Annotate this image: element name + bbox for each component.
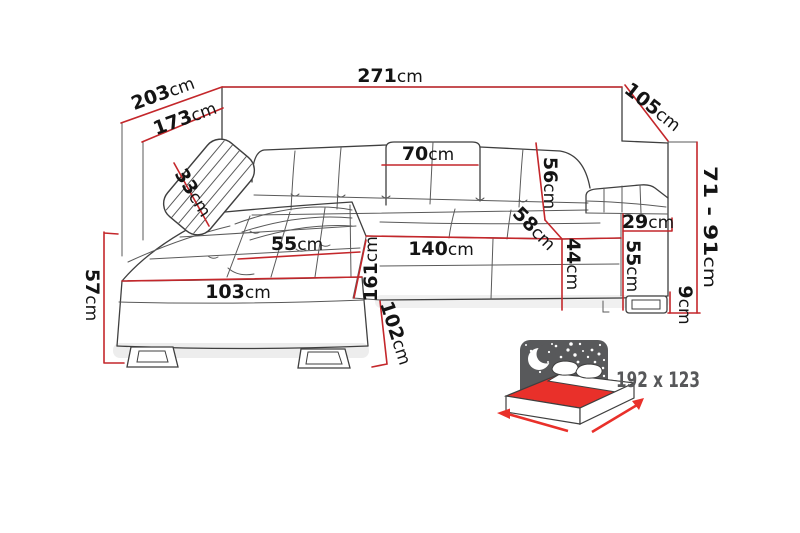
dim-chaise-length: 161cm: [360, 236, 382, 302]
sleeping-area-size: 192 x 123: [616, 368, 700, 392]
dim-seat-front-height: 44cm: [562, 238, 584, 290]
pillow-left: [552, 361, 578, 375]
sofa-dimension-diagram: 271cm 203cm 173cm 105cm 70cm 33cm 56cm 5…: [0, 0, 800, 533]
diagram-canvas: 271cm 203cm 173cm 105cm 70cm 33cm 56cm 5…: [0, 0, 800, 533]
dim-backrest-height: 56cm: [539, 157, 561, 209]
dim-total-height-range: 71 - 91cm: [699, 166, 721, 288]
dim-right-side-depth: 105cm: [620, 78, 685, 136]
sleeping-function-icon: 192 x 123: [497, 340, 700, 432]
dim-seat-width: 140cm: [408, 238, 474, 260]
dim-chaise-seat-width: 55cm: [271, 233, 323, 255]
dim-arm-height: 55cm: [622, 240, 644, 292]
chaise-section: [117, 202, 368, 349]
dim-chaise-front-width: 103cm: [205, 281, 271, 303]
dim-back-width: 271cm: [357, 65, 423, 87]
dim-arm-width: 29cm: [622, 211, 674, 233]
dim-seat-height: 57cm: [81, 269, 103, 321]
dim-leg-height: 9cm: [674, 285, 696, 324]
dim-headrest-cushion-width: 70cm: [402, 143, 454, 165]
dim-chaise-side-height: 102cm: [375, 299, 416, 368]
pillow-right: [576, 364, 602, 378]
